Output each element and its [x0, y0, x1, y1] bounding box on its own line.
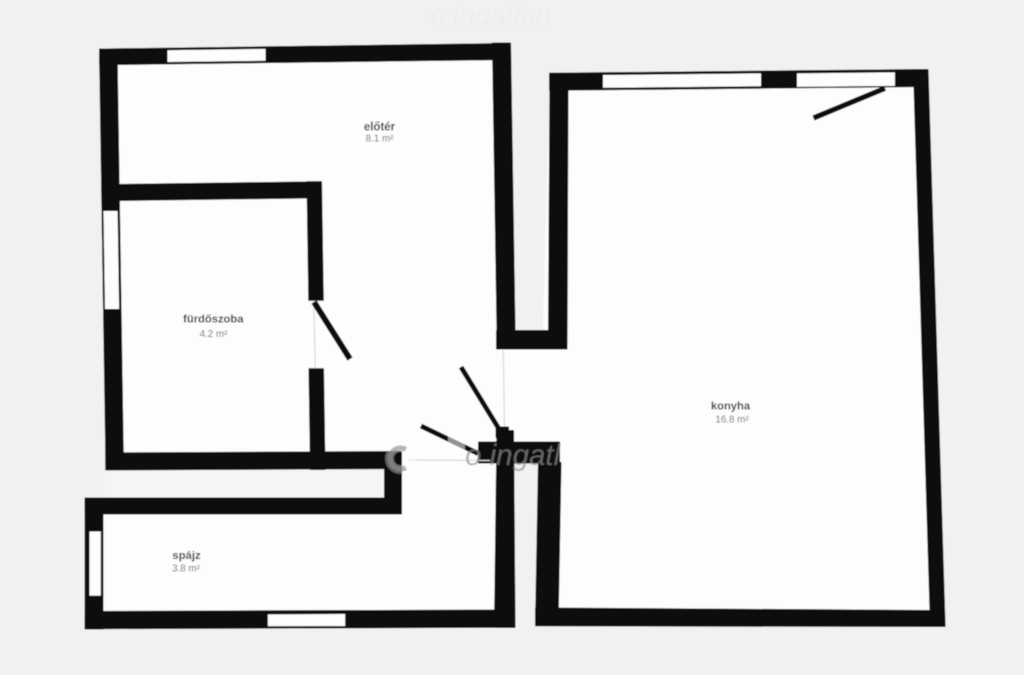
svg-text:8.1 m²: 8.1 m²: [366, 134, 395, 145]
svg-text:16.8 m²: 16.8 m²: [715, 415, 749, 426]
svg-text:konyha: konyha: [711, 401, 751, 413]
svg-text:4.2 m²: 4.2 m²: [200, 329, 229, 340]
svg-text:o ingatl: o ingatl: [465, 439, 562, 472]
svg-text:előtér: előtér: [364, 122, 396, 134]
svg-text:o ingatlan: o ingatlan: [430, 0, 551, 30]
svg-text:spájz: spájz: [172, 550, 201, 562]
svg-text:3.8 m²: 3.8 m²: [172, 564, 201, 575]
svg-text:fürdőszoba: fürdőszoba: [183, 314, 244, 326]
